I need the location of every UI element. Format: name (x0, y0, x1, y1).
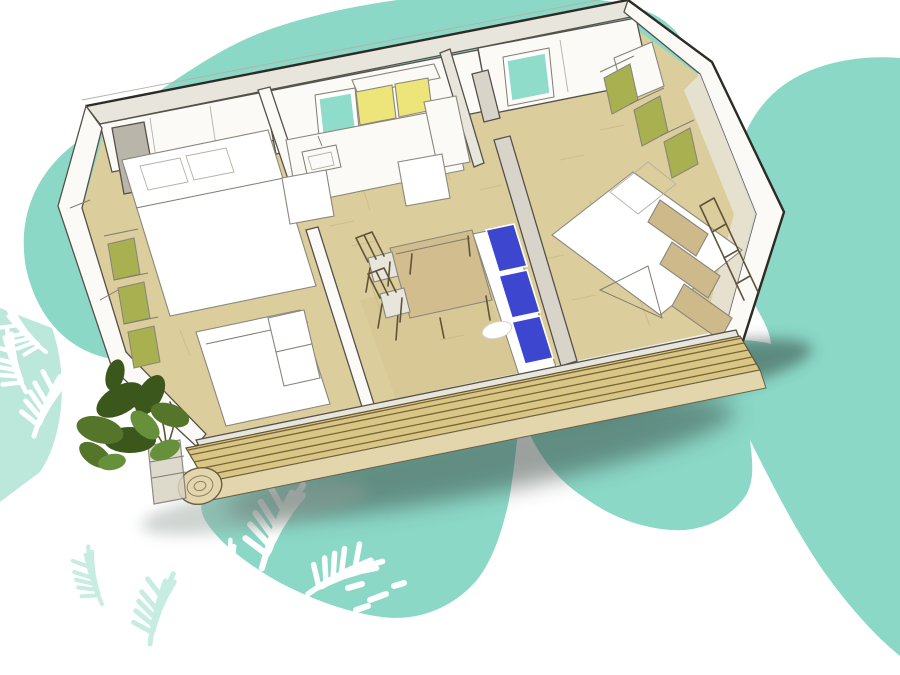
palm-fronds-faint-mint (59, 544, 193, 646)
low-unit-1 (282, 170, 334, 224)
floorplan-illustration (0, 0, 900, 675)
illustration-stage (0, 0, 900, 675)
low-unit-2 (398, 154, 450, 206)
